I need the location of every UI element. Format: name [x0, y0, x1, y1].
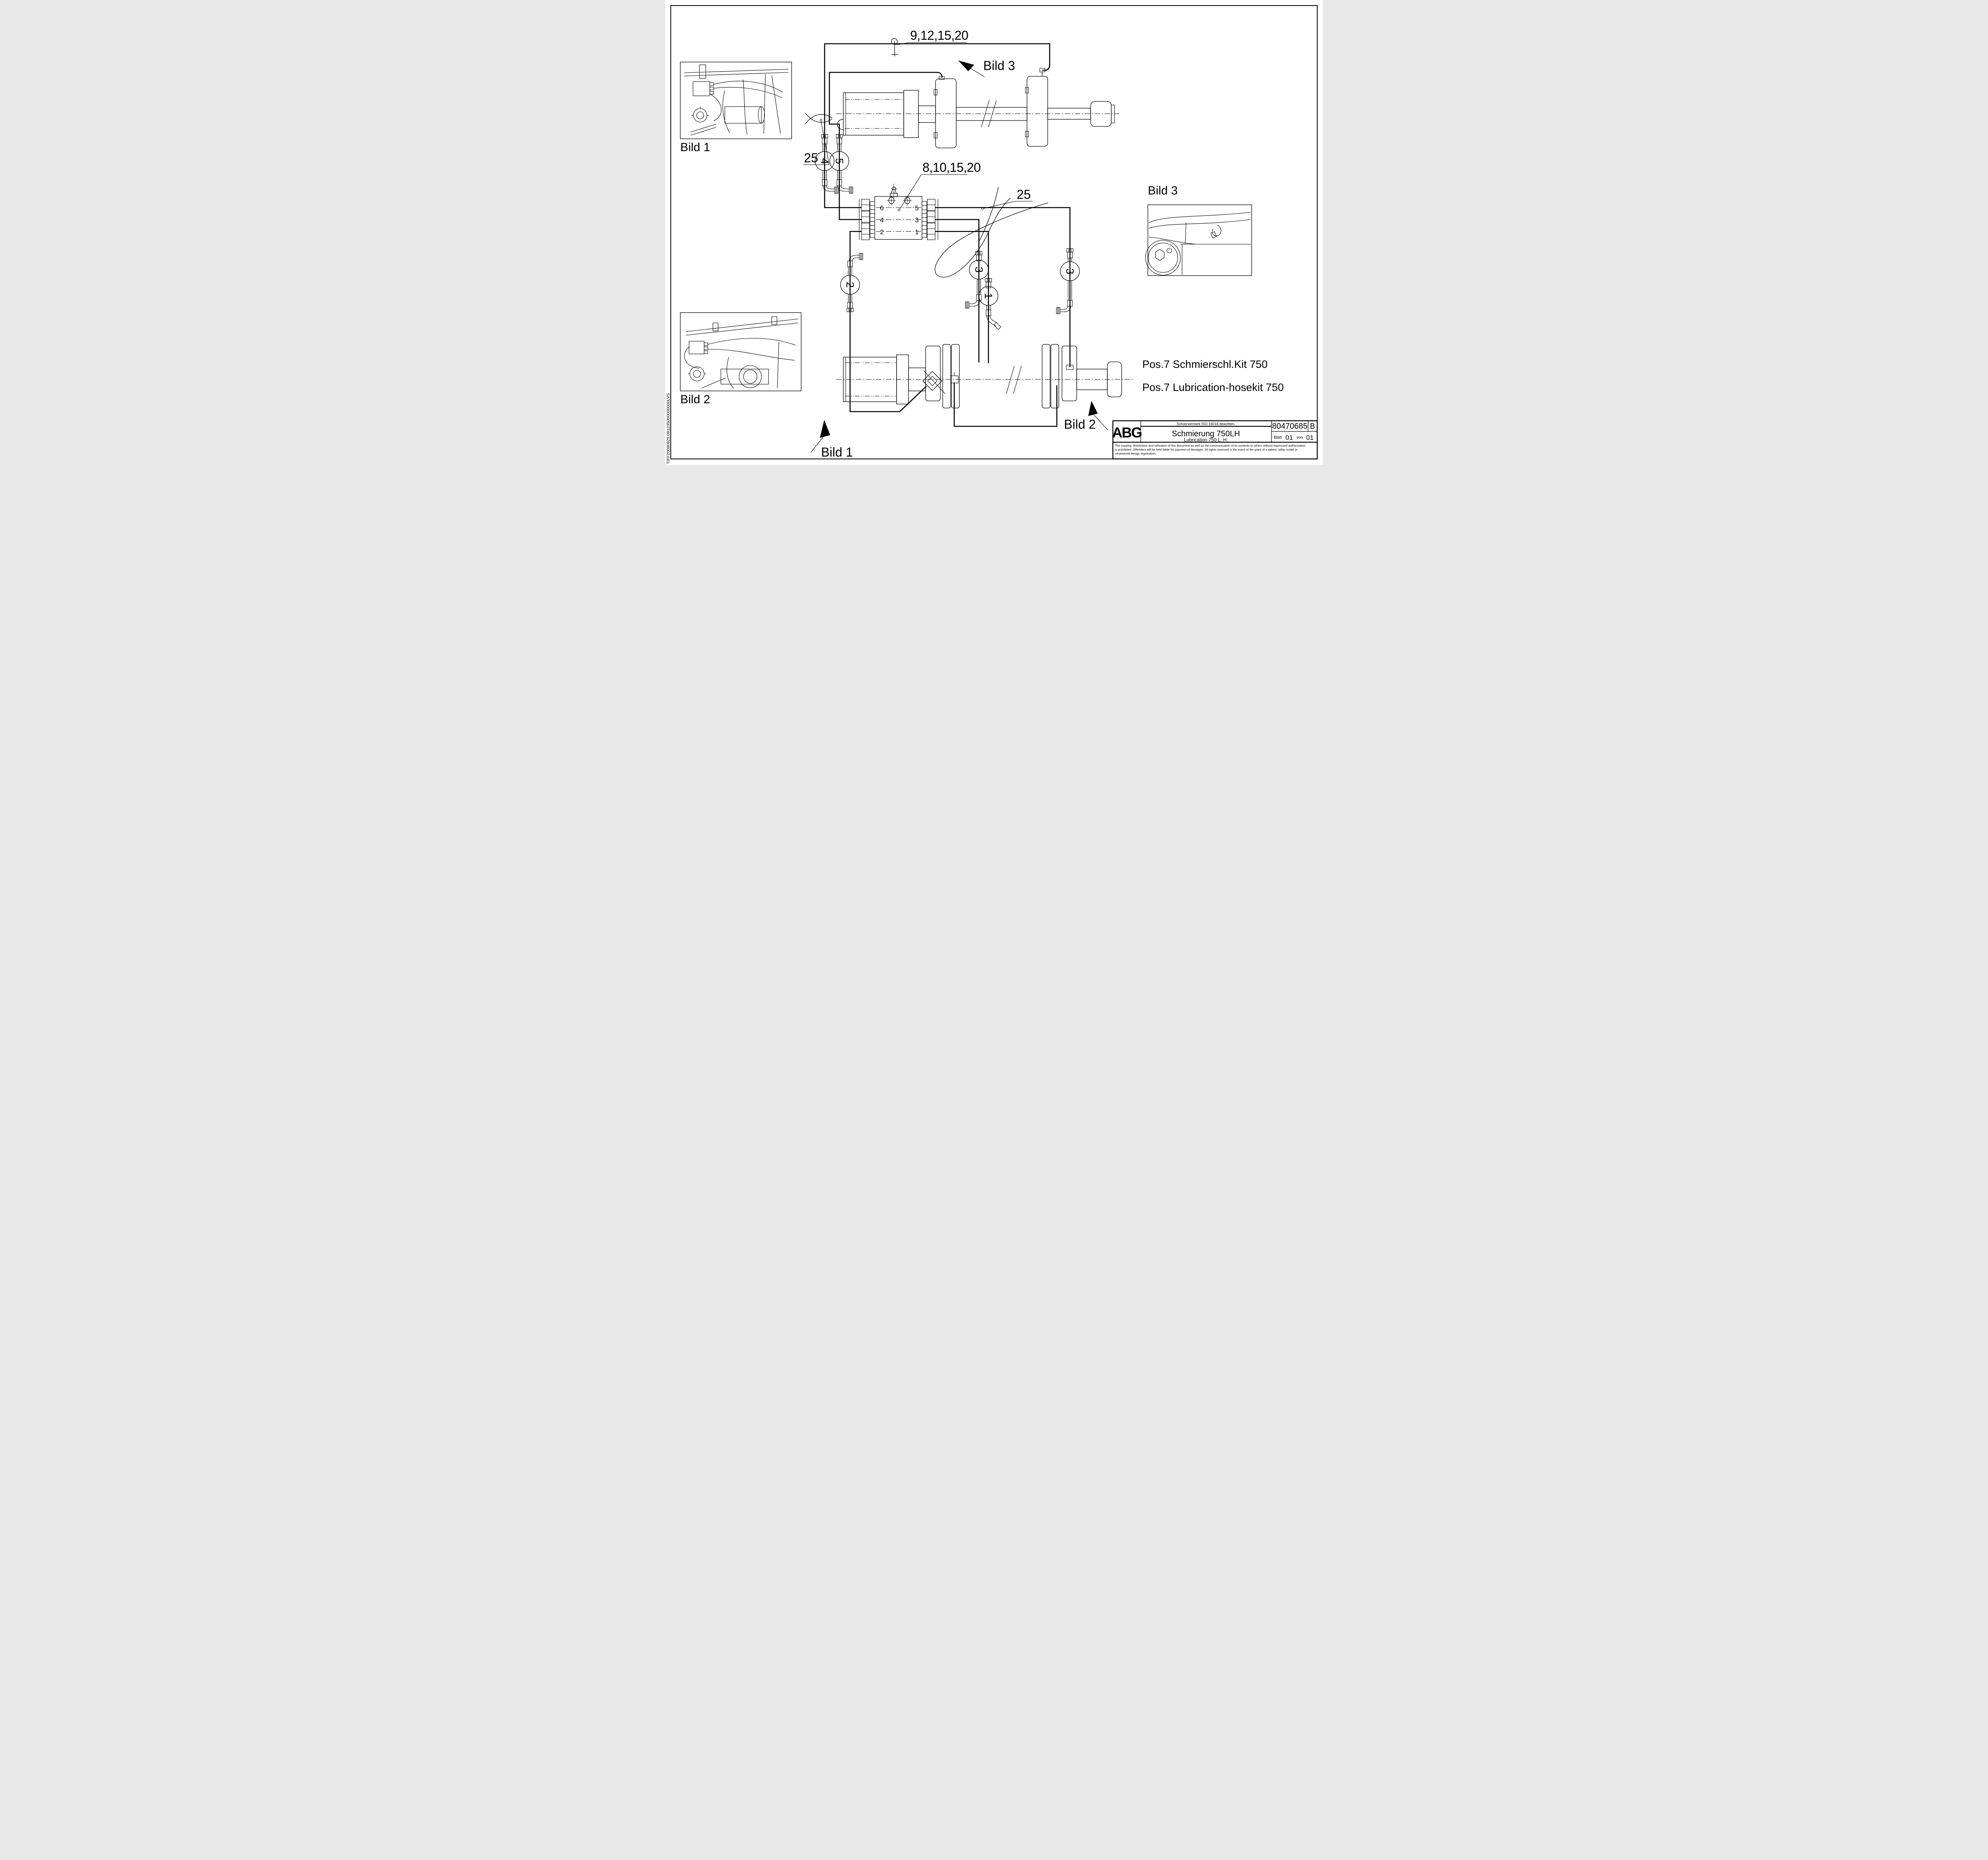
- valve-block: 6 4 2 5 3 1: [856, 184, 944, 240]
- port-1: 1: [915, 228, 918, 236]
- drawing-page: TIFF20080925.081235000000000LVS Bild 1: [665, 0, 1323, 465]
- svg-text:9,12,15,20: 9,12,15,20: [910, 28, 968, 43]
- bild3-inset: Bild 3: [1145, 184, 1252, 276]
- coil-symbol-mid: [935, 187, 1048, 277]
- legal-line-1: The copying, distribution and utilizatio…: [1115, 444, 1306, 447]
- hose-callout-1: 1: [979, 278, 1001, 329]
- bild2-arrow: Bild 2: [1064, 401, 1108, 431]
- drawing-title-en: Lubrication 750 L. H.: [1184, 437, 1228, 443]
- callout-1: 1: [982, 293, 994, 299]
- protection-notice: Schutzvermerk ISO 16016 beachten.: [1176, 422, 1235, 426]
- port-6: 6: [880, 204, 883, 212]
- bild1-artwork: [684, 65, 788, 135]
- port-4: 4: [880, 216, 883, 224]
- side-code: TIFF20080925.081235000000000LVS: [666, 393, 671, 464]
- valve-mounting-holes: [887, 196, 912, 206]
- label-mid-parts: 8,10,15,20: [898, 160, 981, 211]
- hose-callout-3b: 3: [1056, 249, 1079, 314]
- company-logo: ABG: [1112, 424, 1142, 441]
- label-coil-mid: 25: [984, 187, 1033, 208]
- upper-assembly: [836, 76, 1119, 148]
- port-2: 2: [880, 228, 883, 236]
- port-3: 3: [915, 216, 918, 224]
- port-5: 5: [915, 204, 918, 212]
- bild2-inset: Bild 2: [680, 313, 801, 406]
- bild1-ref: Bild 1: [821, 445, 853, 459]
- hose-callout-2: 2: [841, 253, 863, 312]
- valve-port-fittings: [856, 199, 944, 240]
- sheet-total: 01: [1306, 434, 1314, 441]
- callout-5: 5: [833, 158, 845, 164]
- svg-text:25: 25: [1017, 187, 1031, 202]
- revision: B: [1310, 422, 1315, 431]
- legal-line-3: ornamental design registration.: [1115, 452, 1156, 455]
- svg-text:8,10,15,20: 8,10,15,20: [922, 160, 980, 175]
- sheet-number: 01: [1285, 434, 1293, 441]
- pos-note-en: Pos.7 Lubrication-hosekit 750: [1142, 381, 1284, 393]
- hose-callout-3a: 3: [965, 251, 988, 308]
- svg-text:25: 25: [804, 151, 818, 165]
- diagram-canvas: TIFF20080925.081235000000000LVS Bild 1: [665, 0, 1323, 465]
- top-line-nipple: [891, 39, 898, 56]
- callout-2: 2: [844, 282, 856, 288]
- drawing-number: 80470685: [1272, 422, 1308, 431]
- coil-symbol-left: [805, 113, 832, 124]
- callout-3a: 3: [973, 266, 985, 272]
- sheet-label: Blatt: [1274, 435, 1282, 440]
- bild3-arrow: Bild 3: [958, 58, 1015, 77]
- bild2-ref: Bild 2: [1064, 417, 1096, 431]
- grease-point-diamond: [923, 371, 945, 394]
- lower-assembly: [836, 344, 1134, 408]
- bild3-caption: Bild 3: [1148, 184, 1178, 197]
- bild3-artwork: [1145, 212, 1251, 275]
- title-block: ABG Schutzvermerk ISO 16016 beachten. Sc…: [1112, 421, 1317, 459]
- bild2-caption: Bild 2: [680, 393, 710, 406]
- sheet-of-label: von: [1297, 435, 1303, 440]
- bild3-ref: Bild 3: [983, 58, 1015, 73]
- bild2-artwork: [684, 317, 798, 388]
- callout-3b: 3: [1064, 268, 1076, 274]
- bild1-caption: Bild 1: [680, 141, 710, 154]
- label-top-parts: 9,12,15,20: [896, 28, 968, 45]
- bild1-arrow: Bild 1: [811, 420, 853, 459]
- pos-note-de: Pos.7 Schmierschl.Kit 750: [1142, 358, 1268, 370]
- legal-line-2: is prohibited. Offenders will be held li…: [1115, 448, 1298, 451]
- bild1-inset: Bild 1: [680, 62, 792, 154]
- hose-callout-5: 5: [830, 134, 853, 193]
